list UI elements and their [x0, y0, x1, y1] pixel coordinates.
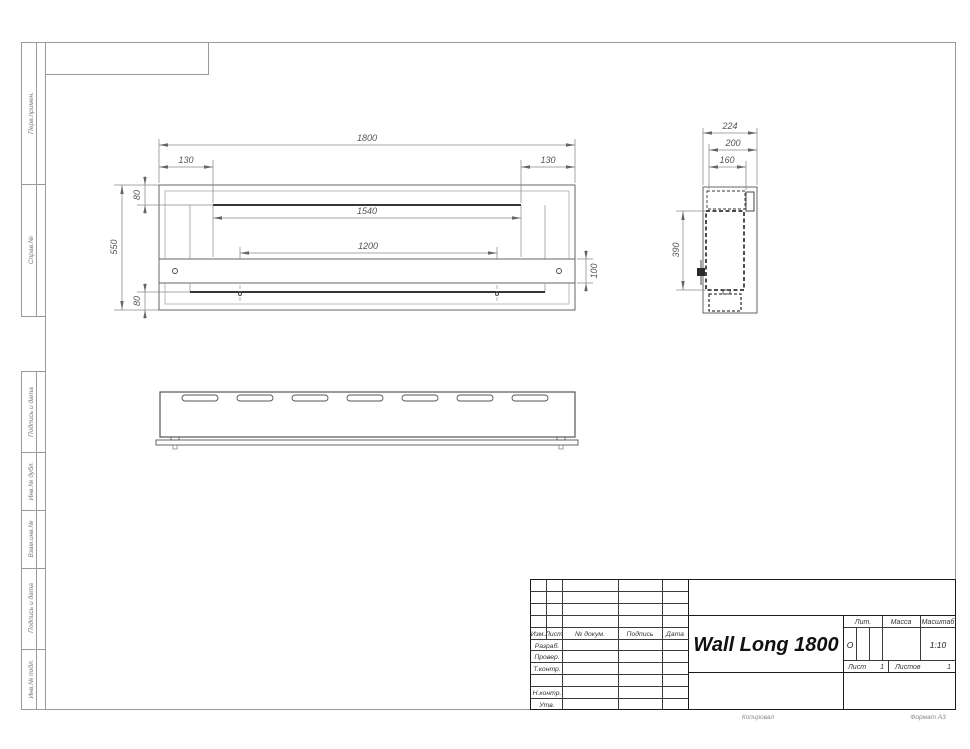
drawing-frame [22, 43, 956, 710]
front-mounting-bracket [159, 259, 575, 283]
sidebar-item-sprav-no: Справ.№ [28, 236, 35, 264]
side-flange [746, 192, 754, 211]
tb-sheet-value: 1 [880, 664, 884, 671]
dim-side-overall-depth: 224 [721, 121, 737, 131]
tb-col-izm: Изм. [531, 631, 546, 638]
bottom-rail [156, 440, 578, 445]
tb-lit-value: О [847, 640, 854, 650]
drawing-sheet: { "sheet": { "copied": "Копировал", "for… [0, 0, 970, 749]
tb-sheets-label: Листов [894, 664, 921, 671]
tb-role-developed: Разраб. [535, 642, 560, 650]
tb-role-checked: Провер. [534, 654, 559, 661]
dim-front-left-offset: 130 [178, 155, 193, 165]
side-body-hidden-box [706, 211, 744, 290]
tb-role-tcontrol: Т.контр. [533, 666, 561, 673]
vent-slot [347, 395, 383, 401]
dim-front-overall-width: 1800 [357, 133, 377, 143]
dim-front-mount-span: 1200 [358, 241, 378, 251]
copied-label: Копировал [742, 714, 775, 721]
side-dimension-labels: 224 200 160 390 [671, 121, 741, 258]
dim-front-top-flange: 80 [132, 190, 142, 200]
vent-slot [402, 395, 438, 401]
sidebar-labels: Перв.примен. Справ.№ Подпись и дата Инв.… [27, 92, 35, 699]
vent-slot [182, 395, 218, 401]
tb-col-sign: Подпись [627, 630, 654, 638]
side-view [697, 187, 757, 313]
side-top-hidden-box [707, 191, 745, 209]
frame-border [46, 43, 956, 710]
dim-side-inner-depth: 200 [724, 138, 740, 148]
tb-scale-label: Масштаб [922, 618, 956, 626]
vent-slot [237, 395, 273, 401]
tb-col-date: Дата [665, 631, 684, 638]
sidebar-item-podpis-data-2: Подпись и дата [27, 583, 35, 633]
tb-sheets-value: 1 [947, 664, 951, 671]
vent-slot [457, 395, 493, 401]
sidebar-item-vzam-inv: Взам.инв.№ [28, 520, 35, 557]
dim-front-overall-height: 550 [109, 239, 119, 254]
sidebar-item-inv-dubl: Инв.№ дубл. [27, 461, 35, 500]
sidebar-item-inv-podl: Инв.№ подл. [27, 659, 35, 698]
bottom-foot-pin-left [173, 445, 177, 449]
drawing-canvas: Перв.примен. Справ.№ Подпись и дата Инв.… [0, 0, 970, 749]
tb-scale-value: 1:10 [930, 640, 947, 650]
footer-notes: Копировал Формат А3 [742, 714, 946, 721]
side-fixing-bolt [697, 268, 705, 276]
dim-front-bracket-height: 100 [589, 263, 599, 278]
sidebar-item-podpis-data-1: Подпись и дата [27, 387, 35, 437]
dim-side-body-depth: 160 [719, 155, 734, 165]
tb-sheet-label: Лист [847, 664, 866, 671]
tb-role-approved: Утв. [538, 702, 555, 709]
vent-slot [292, 395, 328, 401]
bottom-foot-pin-right [559, 445, 563, 449]
vent-slot [512, 395, 548, 401]
dim-front-right-offset: 130 [540, 155, 555, 165]
tb-col-doc: № докум. [575, 630, 605, 638]
tb-role-ncontrol: Н.контр. [533, 690, 562, 697]
corner-designation-box [46, 43, 209, 75]
dim-side-body-height: 390 [671, 242, 681, 257]
tb-lit-label: Лит. [854, 619, 871, 626]
dim-front-opening-width: 1540 [357, 206, 377, 216]
title-block-text: Изм. Лист № докум. Подпись Дата Разраб. … [531, 618, 956, 709]
tb-col-list: Лист [544, 631, 563, 638]
dim-front-bottom-flange: 80 [132, 296, 142, 306]
bottom-view [156, 392, 578, 449]
tb-mass-label: Масса [891, 619, 912, 626]
bottom-body [160, 392, 575, 437]
sidebar-item-perv-primen: Перв.примен. [28, 92, 35, 134]
format-label: Формат А3 [910, 714, 946, 721]
side-bottom-hidden-box [709, 294, 741, 311]
document-title: Wall Long 1800 [693, 634, 838, 656]
